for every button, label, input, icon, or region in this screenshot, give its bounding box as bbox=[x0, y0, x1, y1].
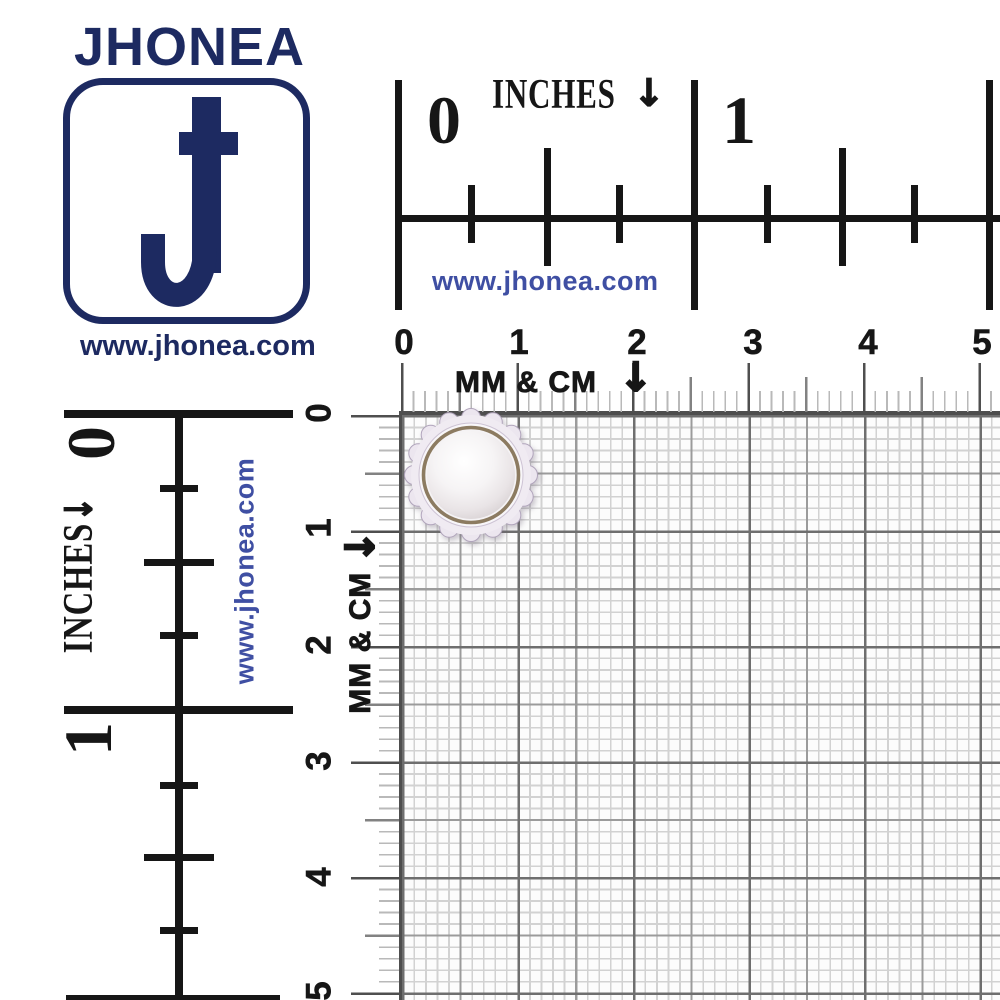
top-inch-tick-0 bbox=[395, 80, 402, 310]
top-metric-unit-label: MM & CM bbox=[455, 368, 597, 398]
top-inch-down-arrow-icon: ↓ bbox=[633, 74, 665, 112]
top-inch-tick-1 bbox=[691, 80, 698, 310]
top-cm-number-5: 5 bbox=[972, 325, 991, 360]
top-inch-tick-2 bbox=[986, 80, 993, 310]
left-metric-unit-label: MM & CM bbox=[346, 572, 376, 714]
left-ruler-website: www.jhonea.com bbox=[230, 458, 261, 685]
product-measurement-photo: JHONEA www.jhonea.com 0 1 INCHES ↓ www.j… bbox=[0, 0, 1000, 1000]
top-inch-tick-half bbox=[544, 148, 551, 266]
brand-logo-j-icon bbox=[63, 78, 310, 324]
left-cm-number-4: 4 bbox=[302, 867, 337, 886]
top-cm-number-0: 0 bbox=[394, 325, 413, 360]
brand-name: JHONEA bbox=[74, 16, 314, 78]
pearl-button-image bbox=[402, 406, 540, 544]
left-cm-number-5: 5 bbox=[302, 981, 337, 1000]
top-inch-unit-label: INCHES bbox=[492, 74, 616, 116]
left-inch-tick-quarter bbox=[160, 632, 198, 639]
left-cm-number-2: 2 bbox=[302, 635, 337, 654]
top-cm-number-3: 3 bbox=[743, 325, 762, 360]
left-inch-tick-half bbox=[144, 559, 214, 566]
left-metric-down-arrow-icon: ↓ bbox=[341, 530, 381, 564]
left-cm-number-1: 1 bbox=[302, 518, 337, 537]
left-inch-tick-half bbox=[144, 854, 214, 861]
left-inch-tick-1 bbox=[64, 706, 293, 714]
left-inch-unit-label: INCHES bbox=[58, 523, 100, 653]
top-inch-tick-half bbox=[839, 148, 846, 266]
left-inch-down-arrow-icon: ↓ bbox=[60, 497, 98, 522]
left-inch-unit: INCHES ↓ bbox=[58, 475, 100, 676]
top-inch-tick-quarter bbox=[468, 185, 475, 243]
top-ruler-website: www.jhonea.com bbox=[432, 266, 659, 297]
brand-website: www.jhonea.com bbox=[80, 330, 316, 363]
left-metric-unit: MM & CM ↓ bbox=[341, 530, 381, 714]
left-cm-number-0: 0 bbox=[302, 403, 337, 422]
left-cm-number-3: 3 bbox=[302, 751, 337, 770]
top-metric-down-arrow-icon: ↓ bbox=[619, 358, 653, 398]
top-cm-number-4: 4 bbox=[858, 325, 877, 360]
left-inch-number-0: 0 bbox=[57, 426, 125, 460]
top-inch-tick-quarter bbox=[911, 185, 918, 243]
left-inch-tick-2-partial bbox=[66, 995, 280, 1000]
top-cm-number-1: 1 bbox=[509, 325, 528, 360]
top-inch-number-0: 0 bbox=[427, 86, 461, 154]
brand-logo bbox=[63, 78, 310, 324]
top-inch-number-1: 1 bbox=[722, 86, 756, 154]
top-inch-tick-quarter bbox=[764, 185, 771, 243]
top-inch-unit: INCHES ↓ bbox=[492, 74, 665, 116]
left-inch-tick-quarter bbox=[160, 485, 198, 492]
left-inch-tick-quarter bbox=[160, 927, 198, 934]
left-inch-ruler-baseline bbox=[175, 410, 183, 1000]
left-inch-number-1: 1 bbox=[54, 722, 122, 756]
top-inch-tick-quarter bbox=[616, 185, 623, 243]
left-inch-tick-quarter bbox=[160, 782, 198, 789]
